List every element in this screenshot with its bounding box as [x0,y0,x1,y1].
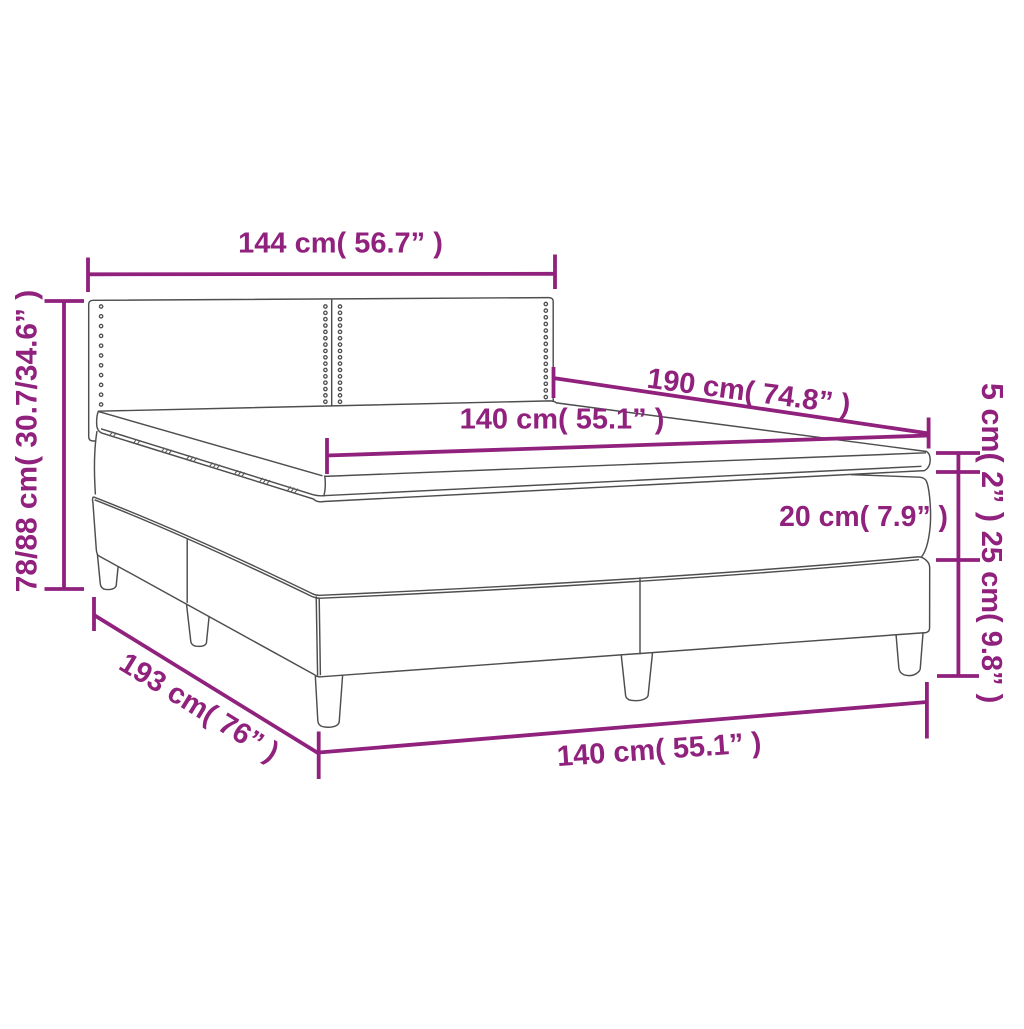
svg-text:144 cm( 56.7” ): 144 cm( 56.7” ) [238,228,443,260]
svg-text:20 cm( 7.9” ): 20 cm( 7.9” ) [779,501,948,533]
svg-text:25 cm( 9.8” ): 25 cm( 9.8” ) [975,531,1007,703]
svg-text:140 cm( 55.1” ): 140 cm( 55.1” ) [556,727,762,773]
svg-text:78/88 cm( 30.7/34.6” ): 78/88 cm( 30.7/34.6” ) [11,290,44,592]
svg-text:140 cm( 55.1” ): 140 cm( 55.1” ) [460,404,665,436]
svg-text:193 cm( 76” ): 193 cm( 76” ) [114,647,285,769]
svg-text:5 cm( 2” ): 5 cm( 2” ) [975,383,1009,522]
svg-text:190 cm( 74.8” ): 190 cm( 74.8” ) [645,363,852,421]
